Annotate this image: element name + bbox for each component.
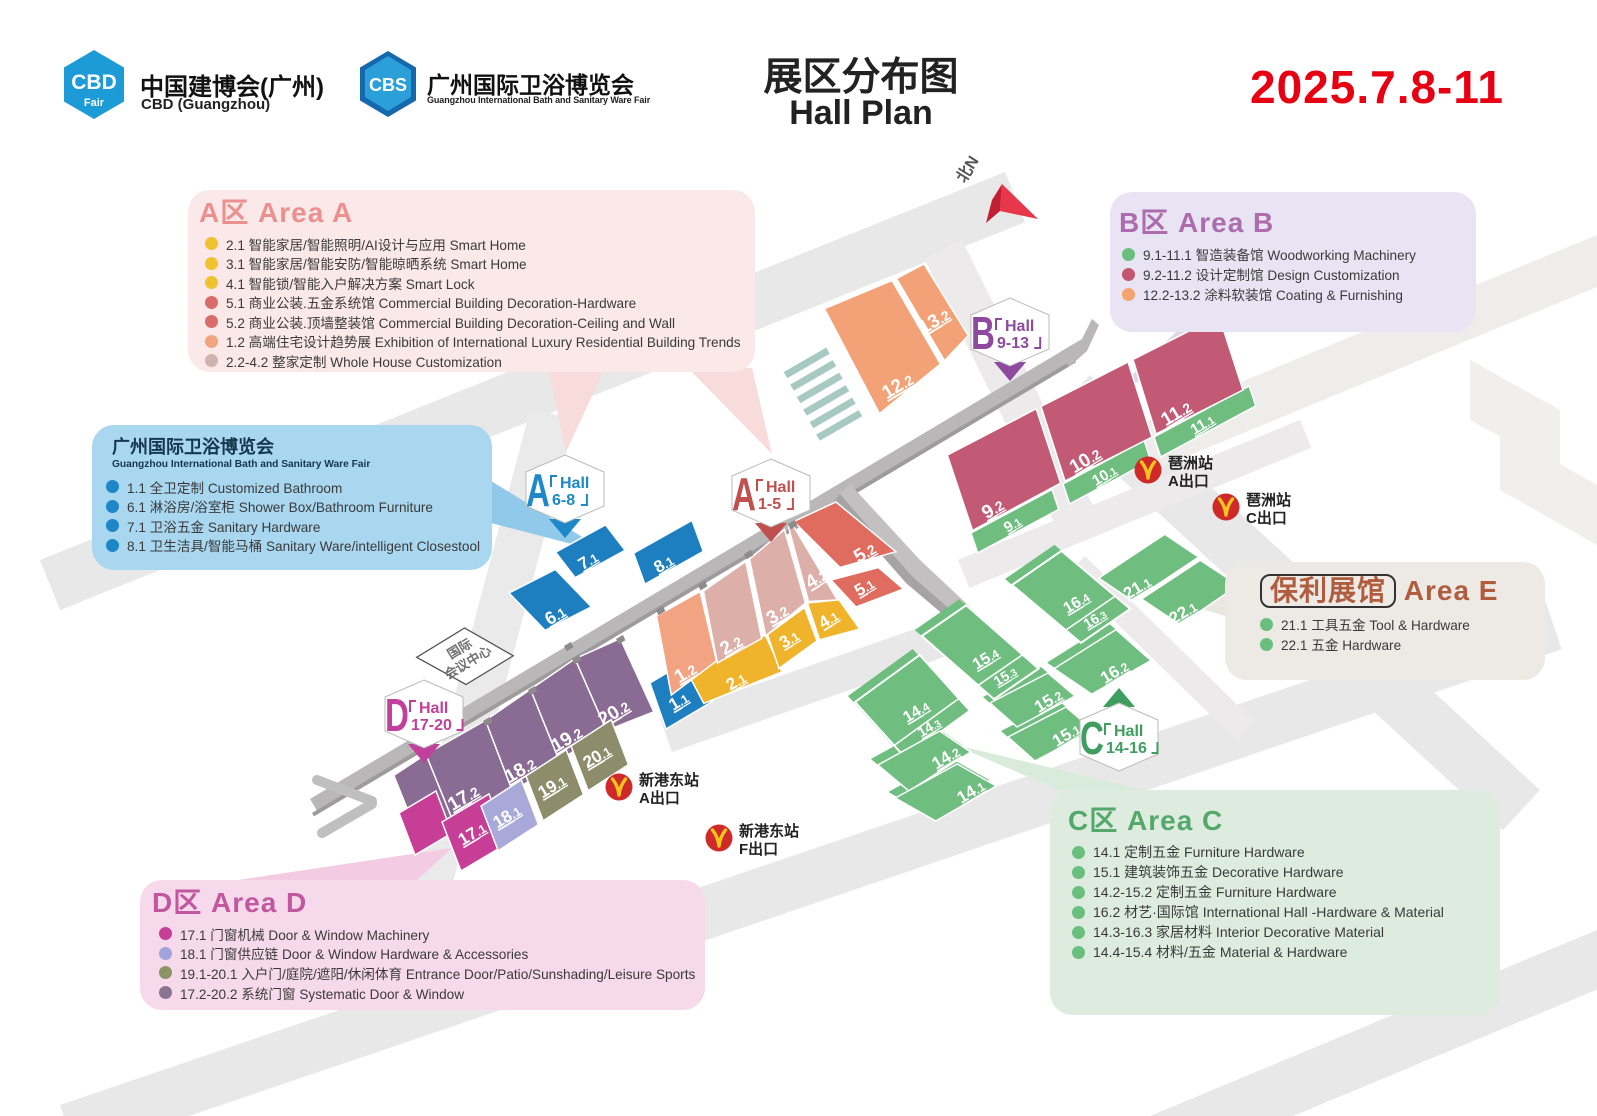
svg-text:琶洲站: 琶洲站: [1246, 491, 1291, 509]
svg-text:9-13: 9-13: [997, 335, 1029, 352]
svg-text:Hall: Hall: [419, 700, 448, 717]
svg-text:Hall: Hall: [1005, 318, 1034, 335]
svg-text:A: A: [526, 466, 550, 516]
svg-text:B: B: [971, 309, 995, 359]
svg-text:6-8: 6-8: [552, 492, 575, 509]
svg-text:新港东站: 新港东站: [739, 822, 799, 840]
svg-text:CBS: CBS: [369, 75, 407, 95]
svg-text:C: C: [1080, 714, 1104, 764]
svg-text:A出口: A出口: [1168, 472, 1209, 490]
svg-text:A出口: A出口: [639, 789, 680, 807]
svg-text:D: D: [385, 691, 409, 741]
svg-text:C出口: C出口: [1246, 509, 1287, 527]
svg-text:Hall: Hall: [1114, 723, 1143, 740]
svg-text:Fair: Fair: [84, 97, 105, 109]
svg-text:Hall: Hall: [766, 479, 795, 496]
svg-text:琶洲站: 琶洲站: [1168, 454, 1213, 472]
svg-text:F出口: F出口: [739, 840, 778, 858]
svg-text:Hall: Hall: [560, 475, 589, 492]
svg-text:新港东站: 新港东站: [639, 771, 699, 789]
svg-text:17-20: 17-20: [411, 717, 452, 734]
svg-text:CBD: CBD: [71, 71, 117, 94]
svg-text:北N: 北N: [953, 153, 983, 186]
svg-text:1-5: 1-5: [758, 496, 781, 513]
svg-text:14-16: 14-16: [1106, 740, 1147, 757]
svg-text:A: A: [732, 470, 756, 520]
